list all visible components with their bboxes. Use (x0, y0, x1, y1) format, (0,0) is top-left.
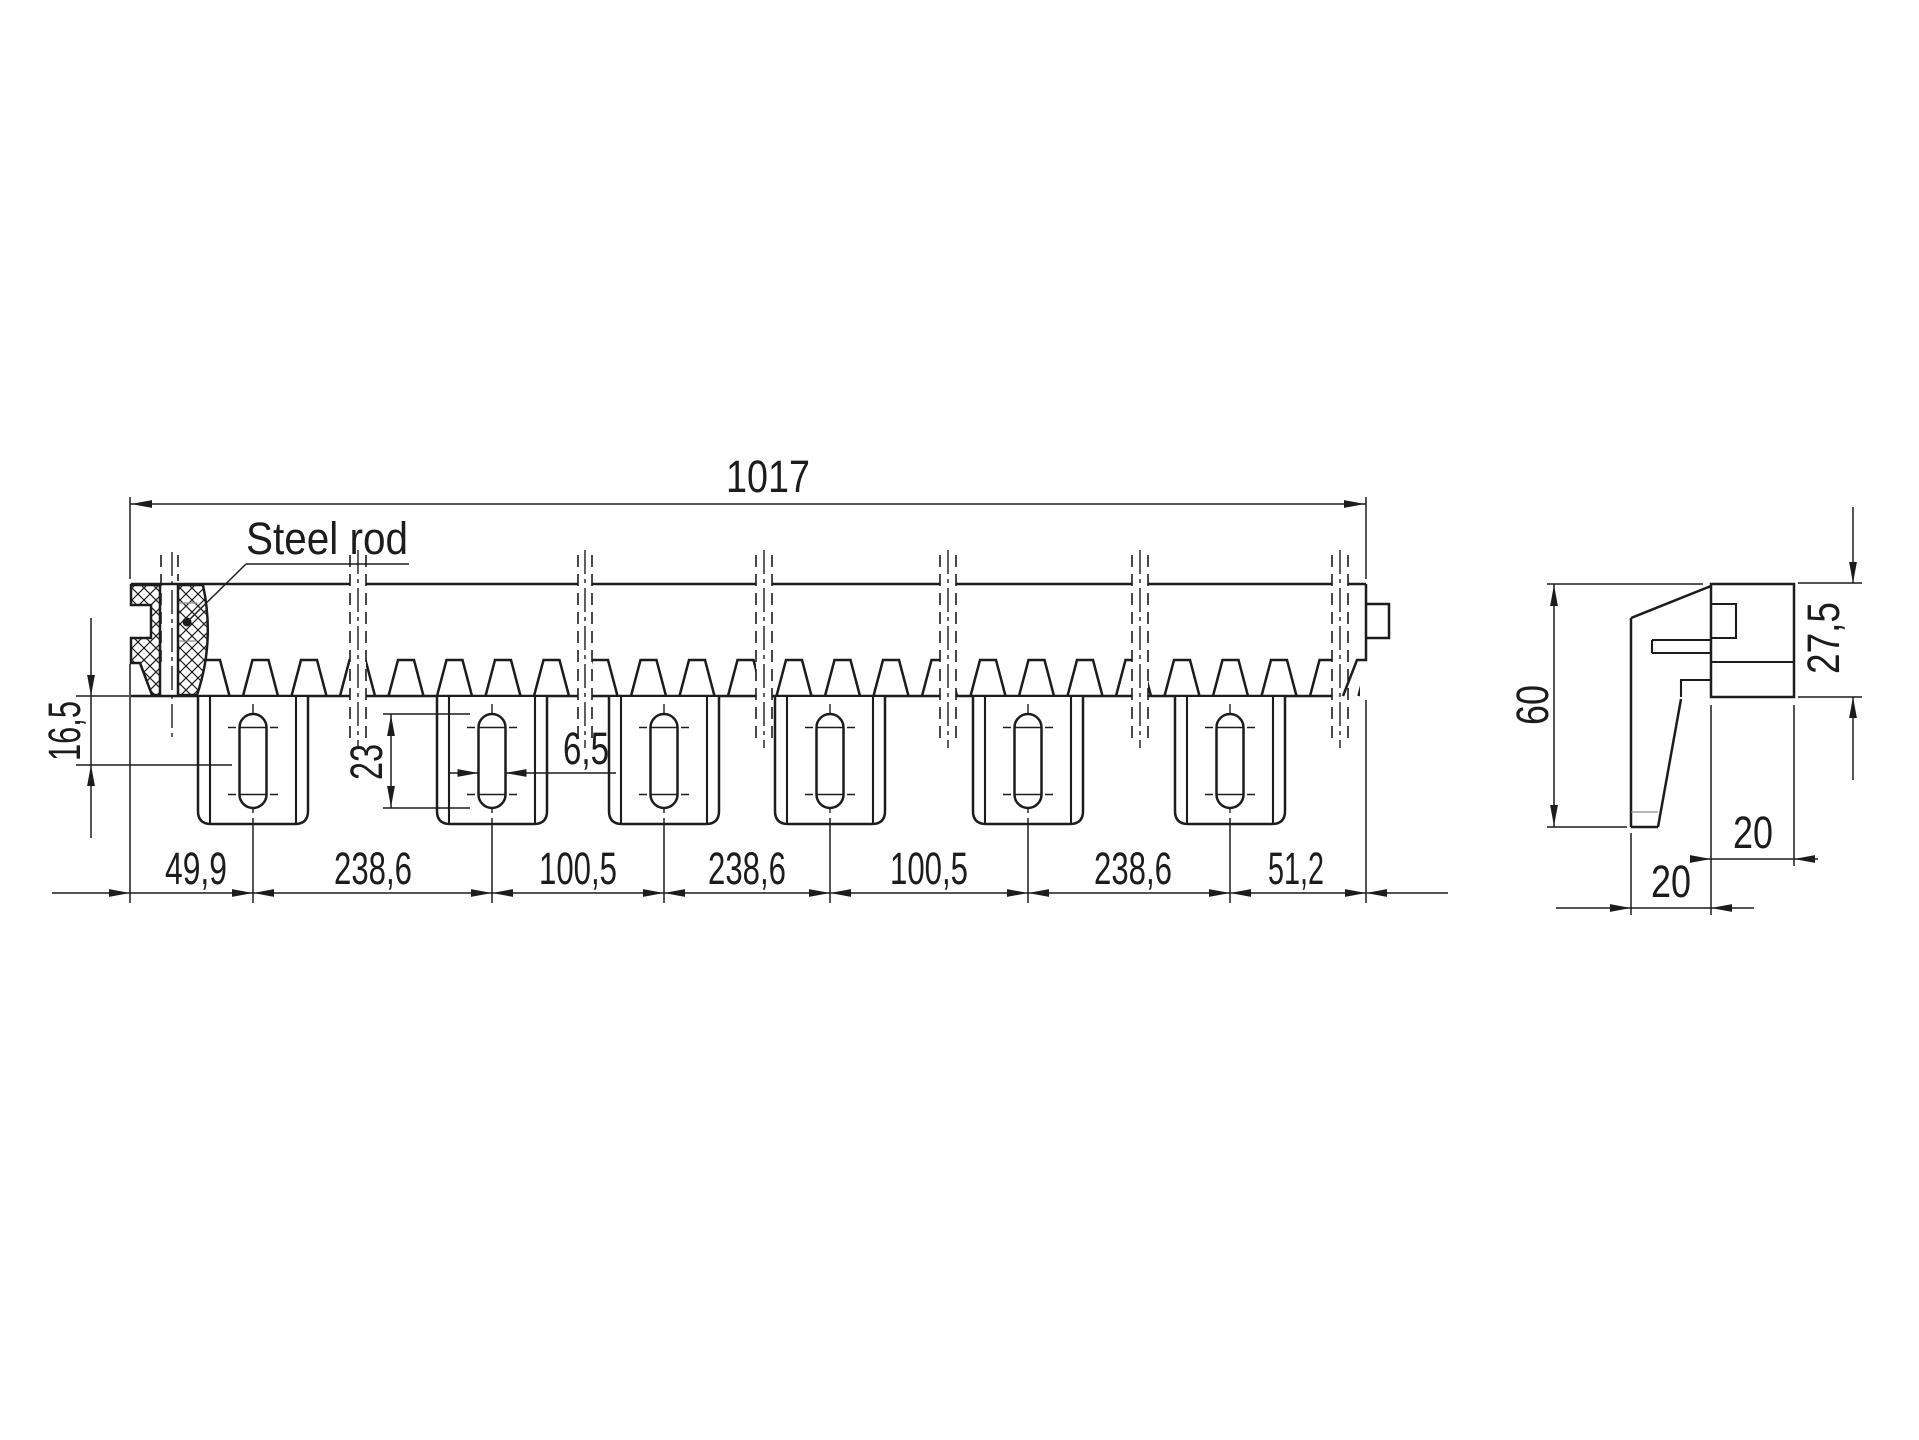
side-view (1631, 584, 1794, 827)
break-lines (161, 550, 1348, 748)
dim-height-left: 16,5 (39, 701, 90, 761)
tooth (971, 660, 1006, 696)
drawing-page: Steel rod 1017 16,5 23 6,5 49,9 238,6 10… (0, 0, 1919, 1440)
side-block-outline (1711, 584, 1794, 697)
rack-teeth (195, 660, 1394, 696)
dim-chain-4: 100,5 (890, 843, 968, 894)
tooth (631, 660, 666, 696)
dim-chain-2: 100,5 (539, 843, 617, 894)
bracket (775, 697, 885, 824)
dimension-arrowhead (664, 889, 685, 897)
tooth (1359, 660, 1394, 696)
dim-side-width-top: 20 (1733, 807, 1773, 858)
dimension-arrowhead (1344, 500, 1365, 508)
chain-arrow-outside (109, 889, 130, 897)
tooth (243, 660, 278, 696)
tooth (1019, 660, 1054, 696)
tooth (680, 660, 715, 696)
bracket (198, 697, 308, 824)
side-hook-diagonal (1658, 699, 1681, 827)
tooth (1262, 660, 1297, 696)
dimension-arrowhead (87, 675, 95, 696)
dimension-arrowhead (1209, 889, 1230, 897)
dimension-arrowhead (131, 500, 152, 508)
tooth (486, 660, 521, 696)
dim-slot-length: 23 (341, 744, 392, 780)
tooth (1068, 660, 1103, 696)
dimension-arrowhead (387, 715, 395, 736)
dim-chain-3: 238,6 (708, 843, 786, 894)
tooth (389, 660, 424, 696)
side-groove (1652, 640, 1711, 653)
dim-side-width-bottom: 20 (1651, 856, 1691, 907)
dimension-arrowhead (1690, 855, 1711, 863)
tooth (583, 660, 618, 696)
side-dimensions: 60 27,5 20 20 (1507, 507, 1862, 915)
bracket (1175, 697, 1285, 824)
side-dimension-lines (1547, 507, 1862, 915)
dimension-arrowhead (830, 889, 851, 897)
dimension-arrowhead (387, 786, 395, 807)
side-bracket-notch (1681, 680, 1711, 697)
dimension-arrowhead (809, 889, 830, 897)
dim-side-height: 60 (1507, 685, 1558, 725)
tooth (728, 660, 763, 696)
dim-slot-width: 6,5 (563, 723, 609, 774)
side-top-slant (1631, 586, 1711, 618)
dim-chain-1: 238,6 (334, 843, 412, 894)
tooth (292, 660, 327, 696)
front-view: Steel rod (131, 513, 1394, 824)
dimension-arrowhead (643, 889, 664, 897)
tooth (437, 660, 472, 696)
dimension-arrowhead (1711, 904, 1732, 912)
dimension-arrowhead (1345, 889, 1366, 897)
rail-right-end (1343, 584, 1366, 696)
dimension-arrowhead (1849, 562, 1857, 583)
dimension-arrowhead (87, 765, 95, 786)
dimension-arrowhead (1610, 904, 1631, 912)
dimension-arrowhead (1028, 889, 1049, 897)
dim-chain-5: 238,6 (1094, 843, 1172, 894)
side-tab-rect (1711, 604, 1736, 638)
dimension-arrowhead (232, 889, 253, 897)
chain-arrow-outside (1366, 889, 1387, 897)
dimension-arrowhead (1550, 805, 1558, 826)
bracket (437, 697, 547, 824)
dim-chain-6: 51,2 (1268, 843, 1324, 894)
dimension-arrowhead (1794, 855, 1815, 863)
dimension-arrowhead (1550, 585, 1558, 606)
dimension-arrowhead (471, 889, 492, 897)
steel-rod-label: Steel rod (246, 513, 408, 564)
dimension-arrowhead (1849, 697, 1857, 718)
dim-side-upper-height: 27,5 (1798, 602, 1849, 674)
tooth (825, 660, 860, 696)
tooth (1213, 660, 1248, 696)
dimension-arrowhead (492, 889, 513, 897)
bracket (973, 697, 1083, 824)
dimension-arrowhead (253, 889, 274, 897)
dim-total-length: 1017 (726, 451, 810, 502)
dimension-arrowhead (1230, 889, 1251, 897)
tooth (534, 660, 569, 696)
dimension-arrowhead (1007, 889, 1028, 897)
steel-rod-section (178, 585, 208, 695)
tooth (1116, 660, 1151, 696)
rail-edges (131, 584, 1366, 696)
dim-chain-0: 49,9 (165, 843, 227, 894)
technical-drawing: Steel rod 1017 16,5 23 6,5 49,9 238,6 10… (0, 0, 1919, 1440)
end-profile-section (131, 585, 160, 695)
tooth (777, 660, 812, 696)
bracket (609, 697, 719, 824)
tooth (874, 660, 909, 696)
tooth (1165, 660, 1200, 696)
rail-right-tab (1366, 604, 1389, 638)
